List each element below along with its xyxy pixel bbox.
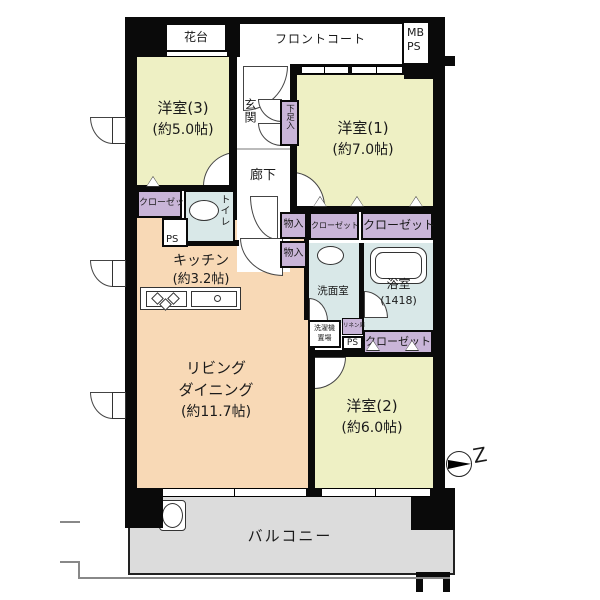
toilet-label: トイレ	[216, 194, 231, 240]
compass-needle	[448, 458, 471, 471]
western2-name: 洋室(2)	[312, 396, 432, 418]
western1-size: (約7.0帖)	[303, 140, 423, 160]
washroom-label: 洗面室	[307, 284, 359, 299]
toilet-bowl-icon	[189, 200, 219, 221]
compass-icon	[446, 451, 472, 477]
western2-size: (約6.0帖)	[312, 418, 432, 438]
linen-cabinet-label: リネン庫	[343, 323, 365, 329]
wall-foot-leg	[416, 572, 423, 592]
western3-label: 洋室(3) (約5.0帖)	[123, 98, 243, 140]
storage-2: 物入	[280, 241, 307, 268]
wall-left	[125, 24, 137, 497]
kitchen-name: キッチン	[140, 251, 262, 271]
closet-small: クローゼット	[309, 212, 359, 240]
washer-space: 洗濯機 置場	[308, 320, 341, 348]
washer-space-label2: 置場	[310, 334, 339, 344]
railing-line	[78, 577, 450, 579]
wall-right	[433, 73, 445, 497]
shoe-cabinet: 下足入	[280, 100, 299, 146]
wall-topright-step	[445, 56, 455, 66]
western1-label: 洋室(1) (約7.0帖)	[303, 118, 423, 160]
exterior-vent-arc	[90, 392, 113, 419]
sink-icon	[214, 295, 221, 302]
washbasin-icon	[317, 246, 344, 265]
window-tick	[375, 488, 376, 497]
window-tick	[234, 488, 235, 497]
western2-label: 洋室(2) (約6.0帖)	[312, 396, 432, 438]
living-name2: ダイニング	[146, 380, 286, 402]
entrance-step-line	[237, 148, 290, 150]
meterbox-label-mb: MB	[407, 26, 428, 40]
flowerbox-label: 花台	[184, 30, 208, 44]
railing-line	[60, 521, 80, 523]
window-tick	[376, 66, 377, 74]
exterior-vent-arc	[90, 260, 113, 287]
entrance-label: 玄関	[242, 98, 259, 142]
corridor-label: 廊下	[237, 167, 289, 186]
storage-1-label: 物入	[284, 219, 304, 230]
window-western1-a	[302, 66, 348, 74]
stove-icon	[146, 291, 187, 307]
wall-foot-leg	[443, 572, 450, 592]
pipe-space-left-label: PS	[166, 234, 178, 245]
storage-1: 物入	[280, 212, 307, 239]
living-name1: リビング	[146, 358, 286, 380]
living-size: (約11.7帖)	[146, 402, 286, 422]
balcony-pan-oval	[162, 503, 183, 528]
exterior-vent-leaf	[112, 260, 126, 287]
bathtub-inner	[375, 252, 422, 279]
window-western1-b	[352, 66, 402, 74]
wall-balcony-mid-stub	[306, 488, 322, 497]
wall-balcony-left-block	[125, 488, 163, 528]
balcony-label: バルコニー	[215, 526, 365, 548]
floor-plan: 花台 MB PS 下足入 クローゼット トイレ PS 物入 物入 クローゼット …	[0, 0, 600, 600]
storage-2-label: 物入	[284, 248, 304, 259]
western1-name: 洋室(1)	[303, 118, 423, 140]
exterior-vent-arc	[90, 117, 113, 144]
washer-space-label1: 洗濯機	[310, 324, 339, 334]
pipe-space-left: PS	[162, 218, 188, 247]
compass-north-label: Z	[471, 442, 489, 468]
window-tick	[324, 66, 325, 74]
pipe-space-bath-label: PS	[347, 338, 358, 348]
living-label: リビング ダイニング (約11.7帖)	[146, 358, 286, 422]
pipe-space-bath: PS	[342, 336, 363, 350]
closet-small-label: クローゼット	[311, 221, 359, 230]
bathroom-name: 浴室	[364, 276, 433, 293]
linen-cabinet: リネン庫	[342, 318, 363, 335]
kitchen-label: キッチン (約3.2帖)	[140, 251, 262, 290]
railing-line	[60, 561, 80, 563]
flowerbox: 花台	[165, 23, 227, 52]
frontcourt-label: フロントコート	[237, 31, 404, 48]
closet-large-label: クローゼット	[363, 218, 435, 232]
closet-west: クローゼット	[137, 190, 182, 218]
meterbox-ps: MB PS	[402, 21, 430, 65]
meterbox-label-ps: PS	[407, 40, 428, 54]
shoe-cabinet-label: 下足入	[284, 104, 296, 130]
closet-large: クローゼット	[361, 212, 433, 240]
balcony-sash-western2	[322, 488, 430, 497]
kitchen-size: (約3.2帖)	[140, 271, 262, 290]
bathroom-size: (1418)	[364, 293, 433, 309]
bathroom-label: 浴室 (1418)	[364, 276, 433, 309]
exterior-vent-leaf	[112, 392, 126, 419]
western3-size: (約5.0帖)	[123, 120, 243, 140]
western3-name: 洋室(3)	[123, 98, 243, 120]
